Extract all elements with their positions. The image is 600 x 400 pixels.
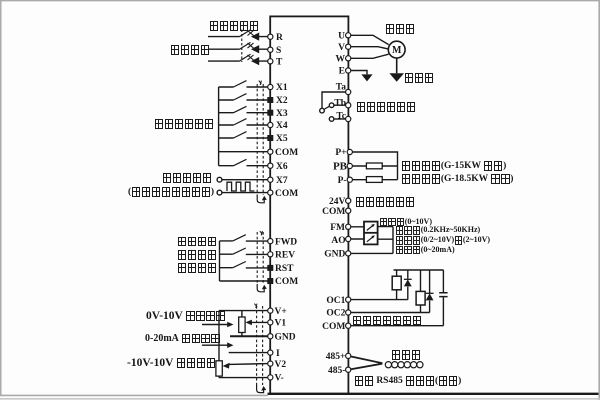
svg-text:COM: COM <box>275 277 298 287</box>
svg-text:T: T <box>276 58 283 68</box>
svg-text:RST: RST <box>275 264 294 274</box>
svg-text:P-: P- <box>338 176 347 186</box>
svg-text:U: U <box>338 32 345 42</box>
svg-text:E: E <box>339 67 345 77</box>
svg-text:485-: 485- <box>328 366 345 376</box>
svg-text:AO: AO <box>331 236 345 246</box>
svg-text:S: S <box>276 46 281 56</box>
svg-text:X3: X3 <box>276 109 288 119</box>
svg-text:OC1: OC1 <box>326 296 345 306</box>
svg-text:X5: X5 <box>276 134 288 144</box>
svg-text:Tc: Tc <box>336 112 346 122</box>
svg-text:Ta: Ta <box>336 83 346 93</box>
svg-text:FWD: FWD <box>275 237 297 247</box>
svg-text:V-: V- <box>275 374 284 384</box>
svg-text:X7: X7 <box>276 176 288 186</box>
svg-text:X4: X4 <box>276 121 288 131</box>
svg-text:COM: COM <box>322 322 345 332</box>
svg-text:V+: V+ <box>275 307 287 317</box>
svg-text:W: W <box>336 55 346 65</box>
svg-text:I: I <box>276 349 280 359</box>
svg-text:Tb: Tb <box>334 98 346 108</box>
svg-text:PB: PB <box>333 161 348 173</box>
svg-text:REV: REV <box>275 251 295 261</box>
svg-text:COM: COM <box>275 189 298 199</box>
svg-text:24V: 24V <box>329 197 346 207</box>
svg-text:P+: P+ <box>335 148 346 158</box>
svg-text:X1: X1 <box>276 83 288 93</box>
svg-text:X6: X6 <box>276 162 288 172</box>
svg-text:GND: GND <box>324 250 345 260</box>
svg-text:GND: GND <box>275 332 296 342</box>
svg-text:V1: V1 <box>275 319 287 329</box>
svg-text:M: M <box>392 45 402 56</box>
svg-text:R: R <box>276 33 283 43</box>
svg-text:OC2: OC2 <box>326 309 345 319</box>
svg-text:V2: V2 <box>275 360 287 370</box>
svg-text:FM: FM <box>330 223 345 233</box>
svg-text:V: V <box>338 43 345 53</box>
svg-text:485+: 485+ <box>326 352 346 362</box>
svg-text:COM: COM <box>322 207 345 217</box>
svg-text:X2: X2 <box>276 96 288 106</box>
svg-text:COM: COM <box>275 148 298 158</box>
